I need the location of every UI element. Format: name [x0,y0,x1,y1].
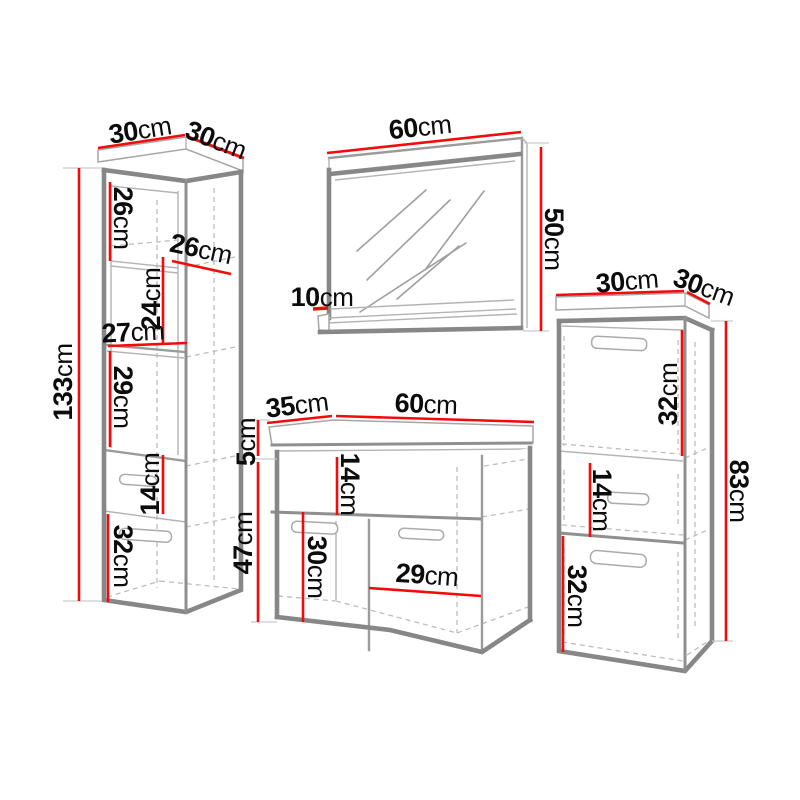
vanity-height-label: 47cm [228,512,258,575]
vanity-countertop-label: 5cm [231,418,261,466]
tall-cabinet-height-label: 133cm [48,343,78,420]
tall-cabinet-niche-width-label: 27cm [101,315,165,348]
mirror-shelf-depth-label: 10cm [291,282,354,312]
mirror-height-label: 50cm [539,208,569,271]
vanity-drawer-label: 14cm [335,453,365,516]
vanity-width-label: 60cm [394,388,458,420]
vanity-door-height-label: 30cm [302,536,332,599]
vanity-door-width-label: 29cm [395,558,460,592]
tall-cabinet-niche1-label: 26cm [108,187,138,250]
side-cabinet-middle-label: 14cm [587,469,617,532]
tall-cabinet-niche3-label: 29cm [108,366,138,429]
side-cabinet-bottom-door-label: 32cm [562,565,592,628]
tall-cabinet-drawer-label: 14cm [135,453,165,516]
side-cabinet-top-door-label: 32cm [653,363,683,426]
side-cabinet-height-label: 83cm [724,460,754,523]
furniture-dimensions-diagram: 30cm 30cm 133cm 26cm 26cm 24cm 27cm 29cm… [0,0,800,800]
diagram-canvas: 30cm 30cm 133cm 26cm 26cm 24cm 27cm 29cm… [0,0,800,800]
side-cabinet-width-label: 30cm [594,263,659,298]
tall-cabinet-door-label: 32cm [108,525,138,588]
